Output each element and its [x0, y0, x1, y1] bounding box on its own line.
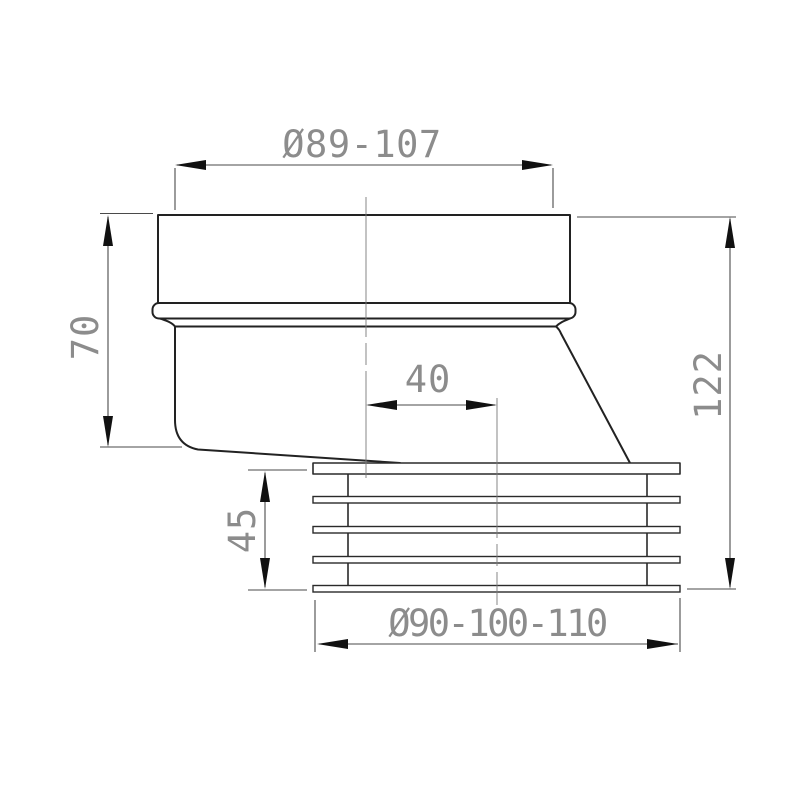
dimension-top-diameter: Ø89-107	[175, 123, 553, 210]
dimension-label-total-height: 122	[687, 350, 730, 420]
seal-rib	[313, 586, 680, 593]
arrowhead-up-icon	[103, 215, 113, 246]
dimension-label-left-height: 70	[64, 314, 107, 361]
dimension-left-height: 70	[64, 214, 182, 448]
arrowhead-up-icon	[725, 217, 735, 248]
dimension-seal-height: 45	[221, 470, 307, 590]
dimension-label-top-diameter: Ø89-107	[282, 123, 441, 166]
dimension-bottom-diameter: Ø90-100-110	[315, 598, 680, 652]
inlet-cylinder	[158, 215, 570, 303]
dimension-label-bottom-diameter: Ø90-100-110	[388, 602, 606, 645]
arrowhead-left-icon	[366, 400, 397, 410]
arrowhead-left-icon	[317, 639, 348, 649]
arrowhead-right-icon	[466, 400, 497, 410]
seal-ribs	[313, 497, 680, 593]
pan-connector-drawing: Ø89-107 70 40 122 45 Ø90-100-110	[0, 0, 800, 800]
collar-underside	[160, 319, 570, 327]
outlet-flange	[313, 463, 680, 474]
arrowhead-right-icon	[647, 639, 678, 649]
arrowhead-left-icon	[175, 160, 206, 170]
dimension-label-seal-height: 45	[221, 507, 264, 554]
seal-rib	[313, 497, 680, 504]
extension-lines	[100, 214, 182, 448]
arrowhead-right-icon	[522, 160, 553, 170]
arrowhead-up-icon	[260, 471, 270, 502]
centerlines	[366, 197, 497, 605]
dimension-label-offset: 40	[405, 358, 452, 401]
arrowhead-down-icon	[725, 558, 735, 589]
arrowhead-down-icon	[103, 416, 113, 447]
collar-band	[153, 303, 576, 319]
technical-drawing-canvas: Ø89-107 70 40 122 45 Ø90-100-110	[0, 0, 800, 800]
seal-rib	[313, 557, 680, 564]
arrowhead-down-icon	[260, 558, 270, 589]
dimension-offset: 40	[366, 358, 497, 410]
seal-rib	[313, 527, 680, 534]
extension-lines	[175, 168, 553, 210]
body-right-slope	[556, 327, 630, 464]
